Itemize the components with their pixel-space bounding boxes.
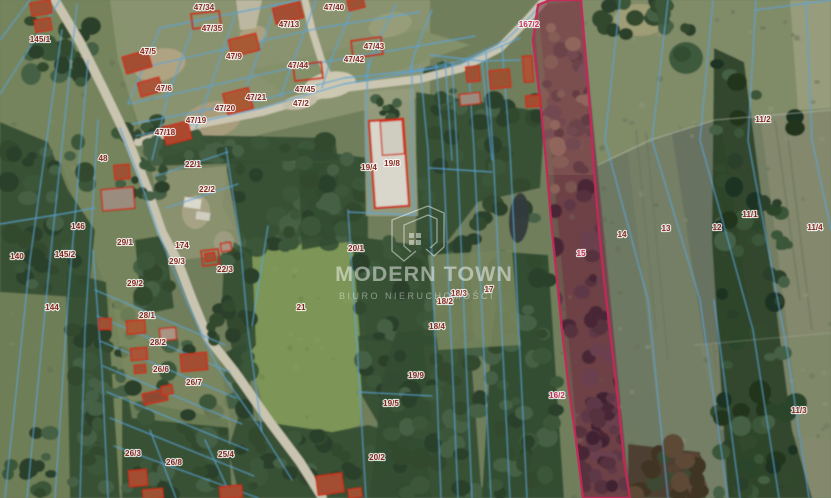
svg-text:26/8: 26/8 [166, 458, 182, 467]
svg-text:18/4: 18/4 [429, 322, 445, 331]
svg-text:11/1: 11/1 [742, 210, 758, 219]
svg-text:26/6: 26/6 [153, 365, 169, 374]
svg-text:146: 146 [71, 222, 85, 231]
svg-text:47/2: 47/2 [293, 99, 309, 108]
svg-text:28/1: 28/1 [139, 311, 155, 320]
svg-text:145/1: 145/1 [30, 35, 51, 44]
svg-text:140: 140 [10, 252, 24, 261]
svg-text:29/2: 29/2 [127, 279, 143, 288]
svg-text:22/2: 22/2 [199, 185, 215, 194]
svg-text:47/34: 47/34 [194, 3, 215, 12]
svg-text:19/4: 19/4 [361, 163, 377, 172]
svg-text:47/21: 47/21 [246, 93, 267, 102]
svg-text:MODERN TOWN: MODERN TOWN [335, 262, 513, 286]
svg-text:48: 48 [98, 154, 108, 163]
svg-text:26/7: 26/7 [186, 378, 202, 387]
svg-text:BIURO NIERUCHOMOŚCI: BIURO NIERUCHOMOŚCI [339, 290, 495, 301]
svg-text:47/13: 47/13 [279, 20, 300, 29]
svg-text:16/2: 16/2 [549, 391, 565, 400]
svg-text:144: 144 [45, 303, 59, 312]
svg-text:15: 15 [576, 249, 586, 258]
svg-text:20/1: 20/1 [348, 244, 364, 253]
svg-text:21: 21 [296, 303, 306, 312]
svg-text:47/42: 47/42 [344, 55, 365, 64]
svg-text:19/8: 19/8 [384, 159, 400, 168]
svg-text:11/4: 11/4 [807, 223, 823, 232]
svg-text:145/2: 145/2 [55, 250, 76, 259]
svg-text:19/9: 19/9 [408, 371, 424, 380]
svg-text:167/2: 167/2 [519, 20, 540, 29]
svg-text:14: 14 [617, 230, 627, 239]
svg-text:25/4: 25/4 [218, 450, 234, 459]
svg-text:22/1: 22/1 [185, 160, 201, 169]
svg-text:47/44: 47/44 [288, 61, 309, 70]
svg-text:22/3: 22/3 [217, 265, 233, 274]
svg-text:47/19: 47/19 [186, 116, 207, 125]
svg-text:26/3: 26/3 [125, 449, 141, 458]
svg-text:29/1: 29/1 [117, 238, 133, 247]
svg-text:47/9: 47/9 [226, 52, 242, 61]
svg-text:174: 174 [175, 241, 189, 250]
svg-text:20/2: 20/2 [369, 453, 385, 462]
svg-text:11/2: 11/2 [755, 115, 771, 124]
svg-text:47/40: 47/40 [324, 3, 345, 12]
svg-text:12: 12 [712, 223, 722, 232]
svg-text:29/3: 29/3 [169, 257, 185, 266]
svg-text:47/5: 47/5 [140, 47, 156, 56]
svg-text:13: 13 [661, 224, 671, 233]
svg-text:47/43: 47/43 [364, 42, 385, 51]
svg-text:47/18: 47/18 [155, 128, 176, 137]
svg-text:19/5: 19/5 [383, 399, 399, 408]
svg-text:47/20: 47/20 [215, 104, 236, 113]
svg-text:11/3: 11/3 [791, 406, 807, 415]
svg-text:47/45: 47/45 [295, 85, 316, 94]
svg-text:47/6: 47/6 [156, 84, 172, 93]
svg-text:47/35: 47/35 [202, 24, 223, 33]
svg-text:28/2: 28/2 [150, 338, 166, 347]
